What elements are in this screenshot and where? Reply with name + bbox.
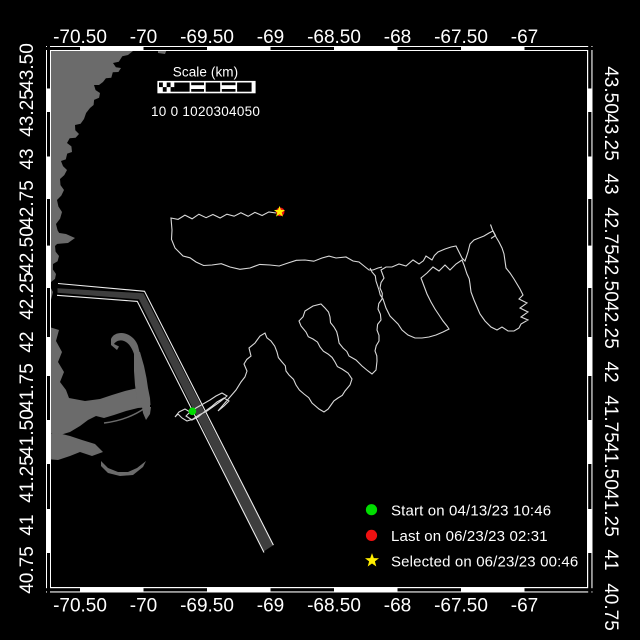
svg-text:42.75: 42.75 xyxy=(17,180,38,228)
svg-text:41: 41 xyxy=(17,514,38,535)
svg-text:Scale (km): Scale (km) xyxy=(173,65,239,80)
svg-text:41.25: 41.25 xyxy=(600,489,621,537)
svg-text:-68.50: -68.50 xyxy=(307,27,361,48)
svg-text:-69: -69 xyxy=(257,596,284,617)
svg-text:41.50: 41.50 xyxy=(600,442,621,490)
svg-text:10 0 1020304050: 10 0 1020304050 xyxy=(151,104,260,119)
svg-text:-67: -67 xyxy=(511,596,538,617)
svg-text:43: 43 xyxy=(17,148,38,169)
svg-text:-69.50: -69.50 xyxy=(180,27,234,48)
svg-text:-68.50: -68.50 xyxy=(307,596,361,617)
svg-text:42.50: 42.50 xyxy=(17,226,38,274)
svg-text:40.75: 40.75 xyxy=(17,546,38,594)
svg-text:43: 43 xyxy=(600,173,621,194)
svg-text:42.25: 42.25 xyxy=(17,272,38,320)
svg-text:-68: -68 xyxy=(384,596,411,617)
svg-text:-68: -68 xyxy=(384,27,411,48)
svg-text:43.25: 43.25 xyxy=(600,113,621,161)
svg-text:43.50: 43.50 xyxy=(17,43,38,91)
svg-text:42.25: 42.25 xyxy=(600,301,621,349)
svg-text:-67: -67 xyxy=(511,27,538,48)
svg-text:Last on 06/23/23 02:31: Last on 06/23/23 02:31 xyxy=(391,528,548,545)
svg-text:42: 42 xyxy=(17,331,38,352)
svg-text:42: 42 xyxy=(600,361,621,382)
svg-text:-70.50: -70.50 xyxy=(53,596,107,617)
svg-text:42.75: 42.75 xyxy=(600,207,621,255)
svg-text:43.25: 43.25 xyxy=(17,89,38,137)
svg-text:-70: -70 xyxy=(130,596,157,617)
svg-text:41.75: 41.75 xyxy=(17,363,38,411)
svg-text:Selected on 06/23/23 00:46: Selected on 06/23/23 00:46 xyxy=(391,554,578,571)
svg-text:41.75: 41.75 xyxy=(600,395,621,443)
svg-text:-69.50: -69.50 xyxy=(180,596,234,617)
svg-text:Start on 04/13/23 10:46: Start on 04/13/23 10:46 xyxy=(391,503,551,520)
svg-text:41.25: 41.25 xyxy=(17,455,38,503)
svg-text:-69: -69 xyxy=(257,27,284,48)
svg-text:-70: -70 xyxy=(130,27,157,48)
svg-text:42.50: 42.50 xyxy=(600,254,621,302)
svg-text:41: 41 xyxy=(600,549,621,570)
svg-text:40.75: 40.75 xyxy=(600,583,621,631)
svg-text:-67.50: -67.50 xyxy=(434,596,488,617)
svg-text:-70.50: -70.50 xyxy=(53,27,107,48)
svg-text:41.50: 41.50 xyxy=(17,409,38,457)
svg-text:-67.50: -67.50 xyxy=(434,27,488,48)
svg-text:43.50: 43.50 xyxy=(600,66,621,114)
